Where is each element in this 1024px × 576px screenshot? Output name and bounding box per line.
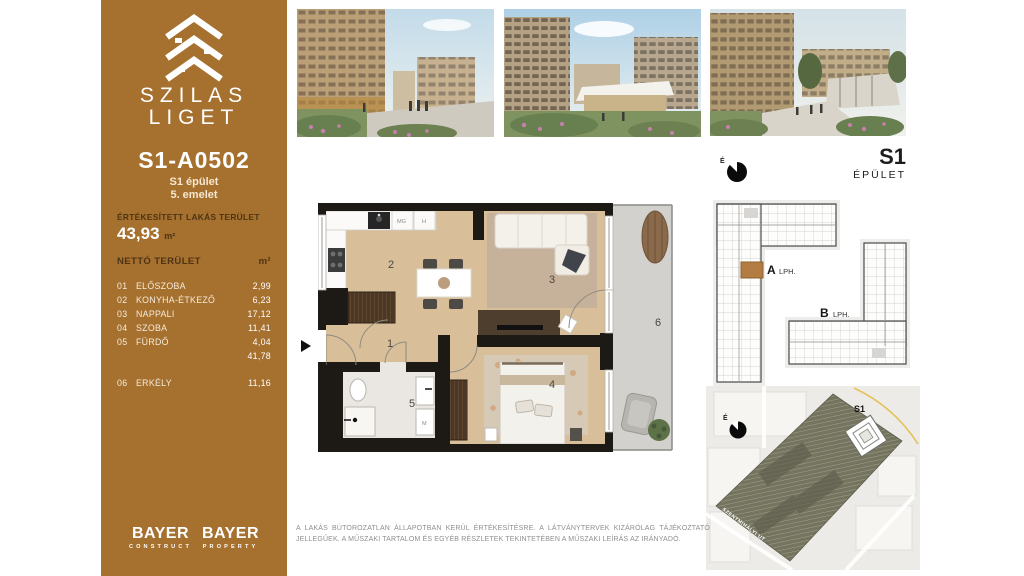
washer-label: M <box>422 421 427 427</box>
unit-floor: 5. emelet <box>101 189 287 201</box>
fridge-label: H <box>422 219 426 225</box>
room-label-bathroom: 5 <box>409 398 415 410</box>
table-row: 02KONYHA-ÉTKEZŐ6,23 <box>117 293 271 307</box>
table-row: 04SZOBA11,41 <box>117 321 271 335</box>
svg-text:É: É <box>723 413 728 422</box>
building-header: S1 ÉPÜLET <box>830 146 906 181</box>
net-area-header: NETTÓ TERÜLET m² <box>117 256 271 267</box>
sold-area-unit: m² <box>164 231 175 241</box>
render-thumbnail-2 <box>504 9 701 142</box>
room-label-kitchen: 2 <box>388 259 394 271</box>
table-row: 05FÜRDŐ4,04 <box>117 335 271 349</box>
core-b-word: LPH. <box>833 310 850 319</box>
room-label-balcony: 6 <box>655 317 661 329</box>
room-label-living: 3 <box>549 274 555 286</box>
room-label-hall: 1 <box>387 338 393 350</box>
dishwasher-label: MG <box>397 219 406 225</box>
datasheet-page: SZILAS LIGET S1-A0502 S1 épület 5. emele… <box>0 0 1024 576</box>
balcony-row: 06ERKÉLY11,16 <box>117 376 271 390</box>
unit-building: S1 épület <box>101 176 287 188</box>
site-plan: S1 SZENTMIHÁLYI ÚT É <box>706 386 920 575</box>
render-thumbnail-1 <box>297 9 494 142</box>
roof-chevrons-icon <box>148 12 240 84</box>
entry-arrow-icon <box>301 340 311 352</box>
north-label: É <box>720 156 725 165</box>
floor-keyplan: A LPH. B LPH. <box>706 196 918 391</box>
apartment-floorplan: 2 1 3 4 5 6 MG H M <box>318 203 674 457</box>
core-a-letter: A <box>767 263 776 277</box>
building-title: S1 <box>830 146 906 168</box>
table-row: 03NAPPALI17,12 <box>117 307 271 321</box>
room-label-bedroom: 4 <box>549 379 555 391</box>
room-area-table: 01ELŐSZOBA2,99 02KONYHA-ÉTKEZŐ6,23 03NAP… <box>117 279 271 390</box>
brand-name-line2: LIGET <box>101 106 287 130</box>
sold-area-label: ÉRTÉKESÍTETT LAKÁS TERÜLET <box>117 212 275 222</box>
sold-area-number: 43,93 <box>117 224 160 243</box>
sold-area-value: 43,93 m² <box>117 224 175 244</box>
sidebar: SZILAS LIGET S1-A0502 S1 épület 5. emele… <box>101 0 287 576</box>
core-b-letter: B <box>820 306 829 320</box>
north-compass-icon: É <box>716 151 752 190</box>
net-area-label: NETTÓ TERÜLET <box>117 256 201 267</box>
highlighted-unit <box>741 262 763 278</box>
brand-logo <box>101 12 287 89</box>
unit-code: S1-A0502 <box>101 147 287 174</box>
core-a-word: LPH. <box>779 267 796 276</box>
developer-logos: BAYER CONSTRUCT BAYER PROPERTY <box>101 526 287 550</box>
disclaimer-text: A lakás bútorozatlan állapotban kerül ér… <box>296 524 710 545</box>
render-thumbnail-3 <box>710 9 906 141</box>
net-total-row: 41,78 <box>117 349 271 363</box>
bayer-construct-logo: BAYER CONSTRUCT <box>129 526 192 550</box>
net-area-unit: m² <box>259 256 271 267</box>
siteplan-building-label: S1 <box>854 404 865 414</box>
building-subtitle: ÉPÜLET <box>830 169 906 181</box>
bayer-property-logo: BAYER PROPERTY <box>202 526 259 550</box>
brand-name-line1: SZILAS <box>101 84 287 108</box>
table-row: 01ELŐSZOBA2,99 <box>117 279 271 293</box>
